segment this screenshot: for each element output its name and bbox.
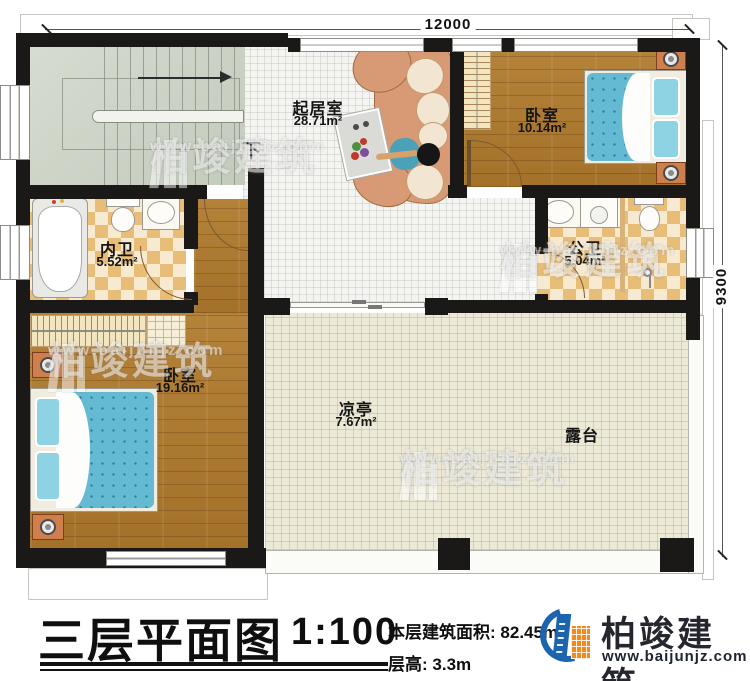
wall-segment xyxy=(16,300,194,313)
bath-divider xyxy=(620,196,625,292)
bed-blanket-left xyxy=(56,392,90,508)
wall-segment xyxy=(535,300,700,313)
lamp-icon xyxy=(663,51,679,67)
wall-segment xyxy=(16,33,288,47)
lamp-icon xyxy=(663,165,679,181)
table-flowers xyxy=(351,152,359,160)
window xyxy=(452,38,502,52)
stair-down-label: 下 xyxy=(242,136,262,163)
nightstand xyxy=(32,514,64,540)
bathtub-basin xyxy=(38,206,82,292)
shower-stem xyxy=(649,276,651,288)
room-area-bedroom-left: 19.16m² xyxy=(156,380,204,395)
room-area-living: 28.71m² xyxy=(294,113,342,128)
wall-segment xyxy=(448,185,467,198)
terrace-parapet-right xyxy=(688,315,704,574)
floor-area-label: 本层建筑面积: xyxy=(388,623,496,642)
corridor-floor xyxy=(452,198,537,302)
brand-logo-icon xyxy=(540,606,600,668)
table-flowers xyxy=(360,138,367,145)
wall-segment xyxy=(16,185,207,199)
window xyxy=(0,225,30,280)
title-underline xyxy=(40,669,388,671)
table-flowers xyxy=(360,148,369,157)
public-toilet-bowl xyxy=(639,206,660,231)
wall-segment xyxy=(425,298,448,315)
nightstand xyxy=(656,162,686,184)
wall-segment xyxy=(248,168,264,557)
lamp-icon xyxy=(40,519,56,535)
public-sink xyxy=(544,200,574,224)
wall-segment xyxy=(184,199,198,249)
room-area-public-bath: 5.04m² xyxy=(564,253,605,268)
window xyxy=(300,38,424,52)
floor-plan-drawing: 下 xyxy=(0,0,750,681)
window xyxy=(686,228,714,278)
eave-outline-bottom-left xyxy=(28,568,268,600)
floor-area-row: 本层建筑面积: 82.45m² xyxy=(388,618,564,643)
bed-pillow xyxy=(652,77,680,117)
plan-title: 三层平面图 xyxy=(38,602,283,671)
bed-pillow xyxy=(35,397,61,447)
nightstand xyxy=(32,352,64,378)
window xyxy=(0,85,30,160)
plan-scale: 1:100 xyxy=(291,611,398,654)
room-name-terrace: 露台 xyxy=(565,422,599,446)
wall-segment xyxy=(448,300,535,313)
floor-height-value: 3.3m xyxy=(432,655,471,674)
table-cup xyxy=(363,121,369,127)
stair-direction-line xyxy=(138,77,220,79)
room-area-bedroom-top: 10.14m² xyxy=(518,120,566,135)
stair-direction-arrowhead xyxy=(220,71,232,83)
floor-height-row: 层高: 3.3m xyxy=(388,650,471,675)
wall-segment xyxy=(535,198,548,254)
room-area-pavilion: 7.67m² xyxy=(335,414,376,429)
window xyxy=(514,38,638,52)
brand-name: 柏竣建筑 xyxy=(601,606,750,681)
terrace-parapet-bottom xyxy=(265,550,702,574)
dimension-line-top xyxy=(45,29,690,30)
sliding-door-handle xyxy=(368,305,382,309)
closet-left-bedroom xyxy=(30,315,146,347)
bathtub-faucet-dot-red xyxy=(52,200,56,204)
terrace-column xyxy=(438,538,470,570)
bed-pillow xyxy=(652,119,680,159)
wall-segment xyxy=(522,185,700,198)
table-cup xyxy=(353,124,359,130)
terrace-column xyxy=(660,538,694,572)
bed-blanket-top xyxy=(622,73,650,161)
floor-height-label: 层高: xyxy=(388,655,428,674)
terrace-floor xyxy=(265,313,702,550)
inner-sink xyxy=(147,201,175,224)
sliding-door-handle xyxy=(352,300,366,304)
title-underline xyxy=(40,662,388,666)
window xyxy=(106,551,226,566)
brand-website: www.baijunjz.com xyxy=(602,648,747,665)
bathtub-faucet-dot-yellow xyxy=(60,199,64,203)
washing-machine-drum xyxy=(590,206,608,224)
stair-handrail xyxy=(92,110,244,123)
person-head xyxy=(417,143,440,166)
bed-pillow xyxy=(35,451,61,501)
closet-shelves xyxy=(146,315,186,347)
logo-tower-orange xyxy=(571,626,590,659)
wall-segment xyxy=(450,45,464,187)
lamp-icon xyxy=(40,357,56,373)
inner-toilet-bowl xyxy=(111,207,135,232)
dimension-right-label: 9300 xyxy=(713,265,730,308)
wall-segment xyxy=(264,298,290,315)
dimension-top-label: 12000 xyxy=(421,16,476,33)
closet-top-bedroom xyxy=(463,48,491,130)
room-area-inner-bath: 5.52m² xyxy=(96,254,137,269)
